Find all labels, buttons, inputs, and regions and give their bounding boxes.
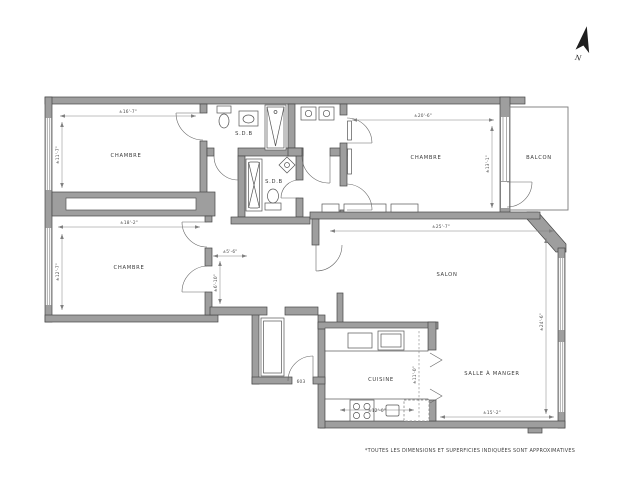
dim-chambre-bl-w: ±18'-2" <box>120 220 138 226</box>
dim-hall-w: ±5'-6" <box>223 249 238 255</box>
dim-chambre-tl-w: ±16'-7" <box>119 109 137 115</box>
door-closet-nook <box>302 156 330 183</box>
label-salon: SALON <box>436 272 457 278</box>
pass-chevron-top <box>430 353 442 367</box>
island-dashed <box>404 400 429 421</box>
north-label: N <box>573 54 582 63</box>
dim-chambre-tr-w: ±20'-6" <box>414 113 432 119</box>
bathroom-fixtures <box>217 105 295 211</box>
shower <box>265 105 286 150</box>
unit-number: 603 <box>297 379 306 385</box>
label-chambre-tl: CHAMBRE <box>111 153 142 159</box>
dim-chambre-bl-h: ±12'-7" <box>55 263 61 281</box>
label-balcon: BALCON <box>526 155 552 161</box>
dim-cuisine-w: ±12'-0" <box>368 408 386 414</box>
label-salle-a-manger: SALLE À MANGER <box>464 370 519 377</box>
bathtub <box>246 159 262 211</box>
toilet-mid <box>265 189 281 210</box>
label-chambre-bl: CHAMBRE <box>114 265 145 271</box>
floor-plan: CHAMBRE CHAMBRE CHAMBRE BALCON S.D.B S.D… <box>0 0 640 494</box>
dim-chambre-tr-h: ±13'-1" <box>485 155 491 173</box>
door-sdb-mid <box>281 180 299 198</box>
door-sdb-top <box>214 156 238 180</box>
dim-salon-h: ±24'-6" <box>539 313 545 331</box>
label-sdb-top: S.D.B <box>235 131 253 137</box>
dim-salle-w: ±15'-2" <box>483 410 501 416</box>
toilet-top <box>217 106 231 128</box>
label-chambre-tr: CHAMBRE <box>411 155 442 161</box>
north-arrow: N <box>573 25 593 64</box>
kitchen-sink <box>386 405 399 416</box>
dim-cuisine-h: ±11'-0" <box>412 366 418 384</box>
door-chambre-bl-2 <box>182 266 207 292</box>
door-chambre-tl <box>176 113 203 140</box>
dim-hall-h: ±6'-10" <box>213 274 219 292</box>
wall-channel <box>66 198 196 210</box>
door-chambre-bl-1 <box>182 222 207 247</box>
north-arrow-icon <box>575 25 593 53</box>
sink-top <box>239 111 258 126</box>
sink-mid <box>279 157 295 173</box>
label-cuisine: CUISINE <box>368 377 394 383</box>
label-sdb-mid: S.D.B <box>265 179 283 185</box>
footnote: *TOUTES LES DIMENSIONS ET SUPERFICIES IN… <box>365 446 575 454</box>
dim-salon-w: ±25'-7" <box>432 224 450 230</box>
dim-chambre-tl-h: ±11'-7" <box>55 146 61 164</box>
kitchen-fixtures <box>325 328 442 421</box>
door-salon <box>316 245 342 271</box>
